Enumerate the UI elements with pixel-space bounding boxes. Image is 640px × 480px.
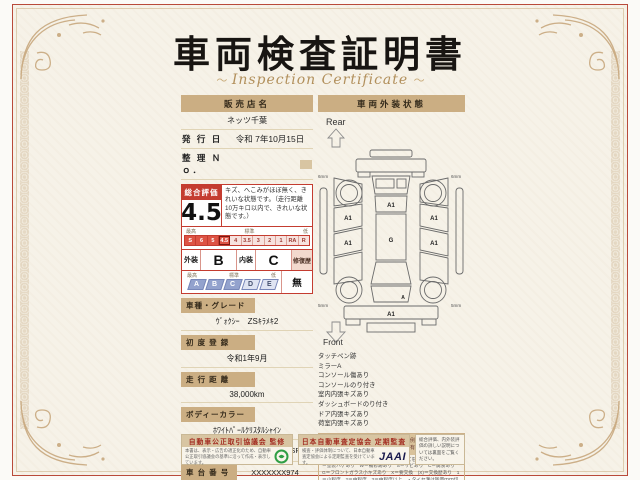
mark-roof: G [389, 238, 394, 244]
rear-label: Rear [326, 117, 346, 127]
fair-trade-council-box: 自動車公正取引協議会 監修 本書は、表示・広告の適正化のため、自動車公正取引協議… [181, 434, 293, 465]
exterior-grade: B [201, 250, 237, 270]
scale-label-best: 最高 [186, 228, 196, 235]
mark-bumper: A1 [387, 312, 395, 318]
model-grade-value: ｳﾞｫｸｼｰ ZSｷﾗﾒｷ2 [181, 313, 313, 331]
corner-ornament-icon [527, 397, 623, 471]
rating-box: 総合評価 4.5 キズ、へこみがほぼ無く、きれいな状態です。（走行距離10万キロ… [181, 184, 313, 294]
fair-trade-council-title: 自動車公正取引協議会 監修 [182, 435, 292, 447]
exterior-interior-row: 外装 B 内装 C 修復歴 [182, 250, 312, 271]
fair-trade-council-text: 本書は、表示・広告の適正化のため、自動車公正取引協議会の基準に沿って作成・表示し… [185, 448, 271, 465]
dealer-name: ネッツ千葉 [181, 112, 313, 130]
note-item: 室内内張キズあり [318, 390, 465, 400]
note-item: コンソールのり付き [318, 381, 465, 391]
scale-cell: 3 [253, 236, 264, 245]
mark-hood: A [401, 295, 405, 301]
page-title: 車両検査証明書 [0, 24, 640, 78]
note-item: 荷室内張キズあり [318, 419, 465, 429]
tire-depth-front-right: 5mm [451, 303, 461, 308]
tire-depth-rear-left: 6mm [318, 174, 328, 179]
scale-cell: 5 [208, 236, 219, 245]
grade-cell: C [223, 279, 243, 290]
scale-cell-current: 4.5 [219, 236, 230, 245]
fair-trade-council-logo-icon [274, 449, 289, 464]
scale-cell: 4 [230, 236, 241, 245]
grade-cell-text: B [212, 281, 217, 288]
scale-cell: 6 [196, 236, 207, 245]
first-registration-label: 初 度 登 録 [181, 335, 255, 350]
note-item: ミラーA [318, 362, 465, 372]
vehicle-info-panel: 販売店名 ネッツ千葉 発 行 日 令和 7年10月15日 整 理 Ｎｏ． 総合評… [181, 95, 313, 480]
rating-scale: 最高 標準 低 S 6 5 4.5 4 3.5 3 2 1 RA R [182, 227, 312, 250]
scale-cell: RA [287, 236, 298, 245]
note-item: ダッシュボードのり付き [318, 400, 465, 410]
grade-cell-text: E [267, 281, 272, 288]
grade-scale-row: 最高 標準 低 A B C D E 無 [182, 271, 312, 293]
jaai-audit-text: 検査・評価体制について、日本自動車査定協会による定期監査を受けています。 [302, 448, 376, 465]
grade-cell-text: A [194, 281, 199, 288]
mark-center: A1 [387, 203, 395, 209]
chassis-no-row: 車 台 番 号 XXXXXXX974 [181, 465, 313, 480]
jaai-audit-box: 日本自動車査定協会 定期監査 検査・評価体制について、日本自動車査定協会による定… [298, 434, 410, 465]
note-item: タッチペン跡 [318, 352, 465, 362]
mileage-value: 38,000km [181, 387, 313, 403]
rating-description: キズ、へこみがほぼ無く、きれいな状態です。（走行距離10万キロ以内で、きれいな状… [222, 185, 312, 226]
grade-cell: A [187, 279, 207, 290]
condition-notes: タッチペン跡 ミラーA コンソール傷あり コンソールのり付き 室内内張キズあり … [318, 352, 465, 429]
guilloche-left [20, 51, 29, 429]
scale-cell: 1 [276, 236, 287, 245]
exterior-label: 外装 [182, 250, 201, 270]
mark-left-bottom: A1 [344, 241, 352, 247]
page-subtitle: ～ Inspection Certificate ～ [0, 72, 640, 88]
grade-label-low: 低 [271, 272, 276, 279]
overall-rating-value: 4.5 [182, 200, 221, 226]
repair-history-label: 修復歴 [292, 250, 312, 270]
tire-depth-rear-right: 6mm [451, 174, 461, 179]
see-reverse-note: 総合評価、内外装評価の詳しい説明については裏面をご覧ください。 [415, 434, 465, 465]
footer: 自動車公正取引協議会 監修 本書は、表示・広告の適正化のため、自動車公正取引協議… [181, 434, 465, 465]
ref-no-row: 整 理 Ｎｏ． [181, 149, 313, 180]
interior-grade: C [256, 250, 292, 270]
certificate-page: 車両検査証明書 ～ Inspection Certificate ～ 販売店名 … [0, 0, 640, 480]
chassis-no-label: 車 台 番 号 [181, 465, 237, 480]
scale-label-low: 低 [303, 228, 308, 235]
scale-cell: 2 [265, 236, 276, 245]
grade-cell-text: D [248, 281, 253, 288]
car-diagram: Rear [318, 114, 465, 348]
scale-cell: S [185, 236, 196, 245]
jaai-logo: JAAI [379, 451, 406, 463]
exterior-condition-header: 車両外装状態 [318, 95, 465, 112]
scale-cell: R [299, 236, 309, 245]
mileage-label: 走 行 距 離 [181, 372, 255, 387]
mark-right-top: A1 [430, 216, 438, 222]
overall-rating-label: 総合評価 [182, 185, 221, 200]
interior-label: 内装 [237, 250, 256, 270]
tire-depth-front-left: 5mm [318, 303, 328, 308]
exterior-condition-panel: 車両外装状態 Rear [318, 95, 465, 480]
grade-cell: D [241, 279, 261, 290]
issue-date-label: 発 行 日 [182, 133, 228, 145]
note-item: コンソール傷あり [318, 371, 465, 381]
issue-date-row: 発 行 日 令和 7年10月15日 [181, 130, 313, 149]
corner-ornament-icon [17, 397, 113, 471]
subtitle-flourish-left: ～ [216, 74, 226, 87]
scale-cell: 3.5 [242, 236, 253, 245]
grade-cell-text: C [230, 281, 235, 288]
repair-history-value: 無 [282, 271, 312, 293]
grade-cell: B [205, 279, 225, 290]
issue-date-value: 令和 7年10月15日 [228, 133, 312, 145]
note-item: ドア内張キズあり [318, 410, 465, 420]
dealer-header: 販売店名 [181, 95, 313, 112]
grade-cell: E [259, 279, 279, 290]
scale-label-standard: 標準 [244, 228, 254, 235]
mark-right-bottom: A1 [430, 241, 438, 247]
subtitle-flourish-right: ～ [414, 74, 424, 87]
guilloche-right [611, 51, 620, 429]
ref-no-label: 整 理 Ｎｏ． [182, 152, 228, 176]
car-top-view-diagram: Rear [318, 114, 465, 346]
seal-box [300, 160, 312, 169]
grade-label-standard: 標準 [229, 272, 239, 279]
jaai-audit-title: 日本自動車査定協会 定期監査 [299, 435, 409, 447]
front-label: Front [323, 337, 343, 346]
first-registration-value: 令和1年9月 [181, 350, 313, 368]
body-color-label: ボディーカラー [181, 407, 255, 422]
mark-left-top: A1 [344, 216, 352, 222]
model-grade-label: 車種・グレード [181, 298, 255, 313]
grade-label-best: 最高 [187, 272, 197, 279]
subtitle-text: Inspection Certificate [232, 72, 408, 88]
chassis-no-value: XXXXXXX974 [237, 468, 313, 477]
